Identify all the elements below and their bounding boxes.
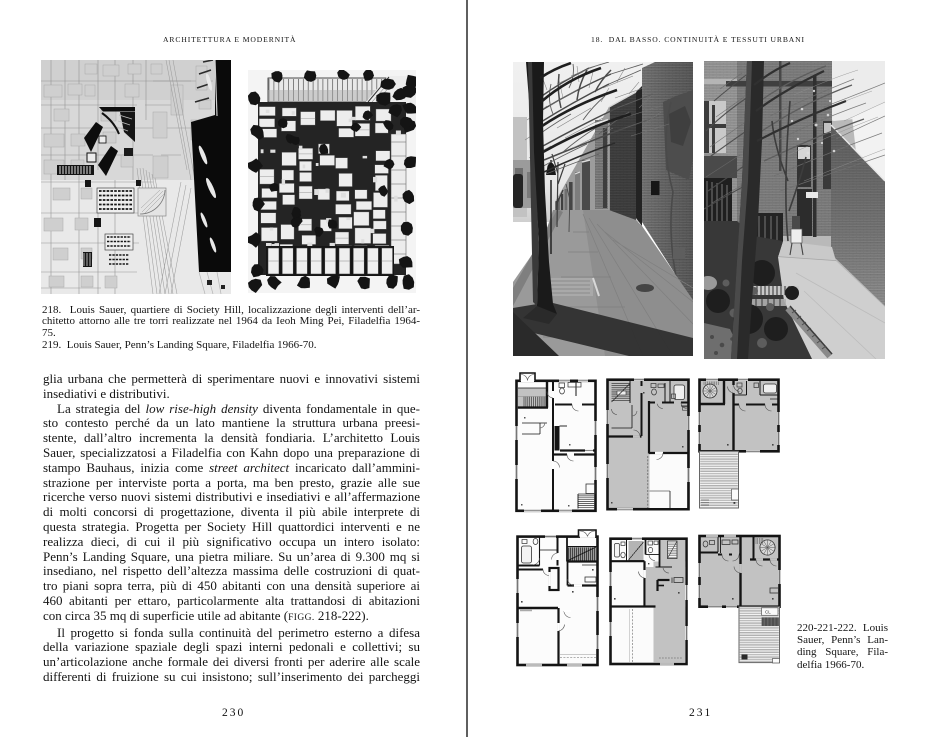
svg-text:CL: CL	[765, 610, 771, 615]
